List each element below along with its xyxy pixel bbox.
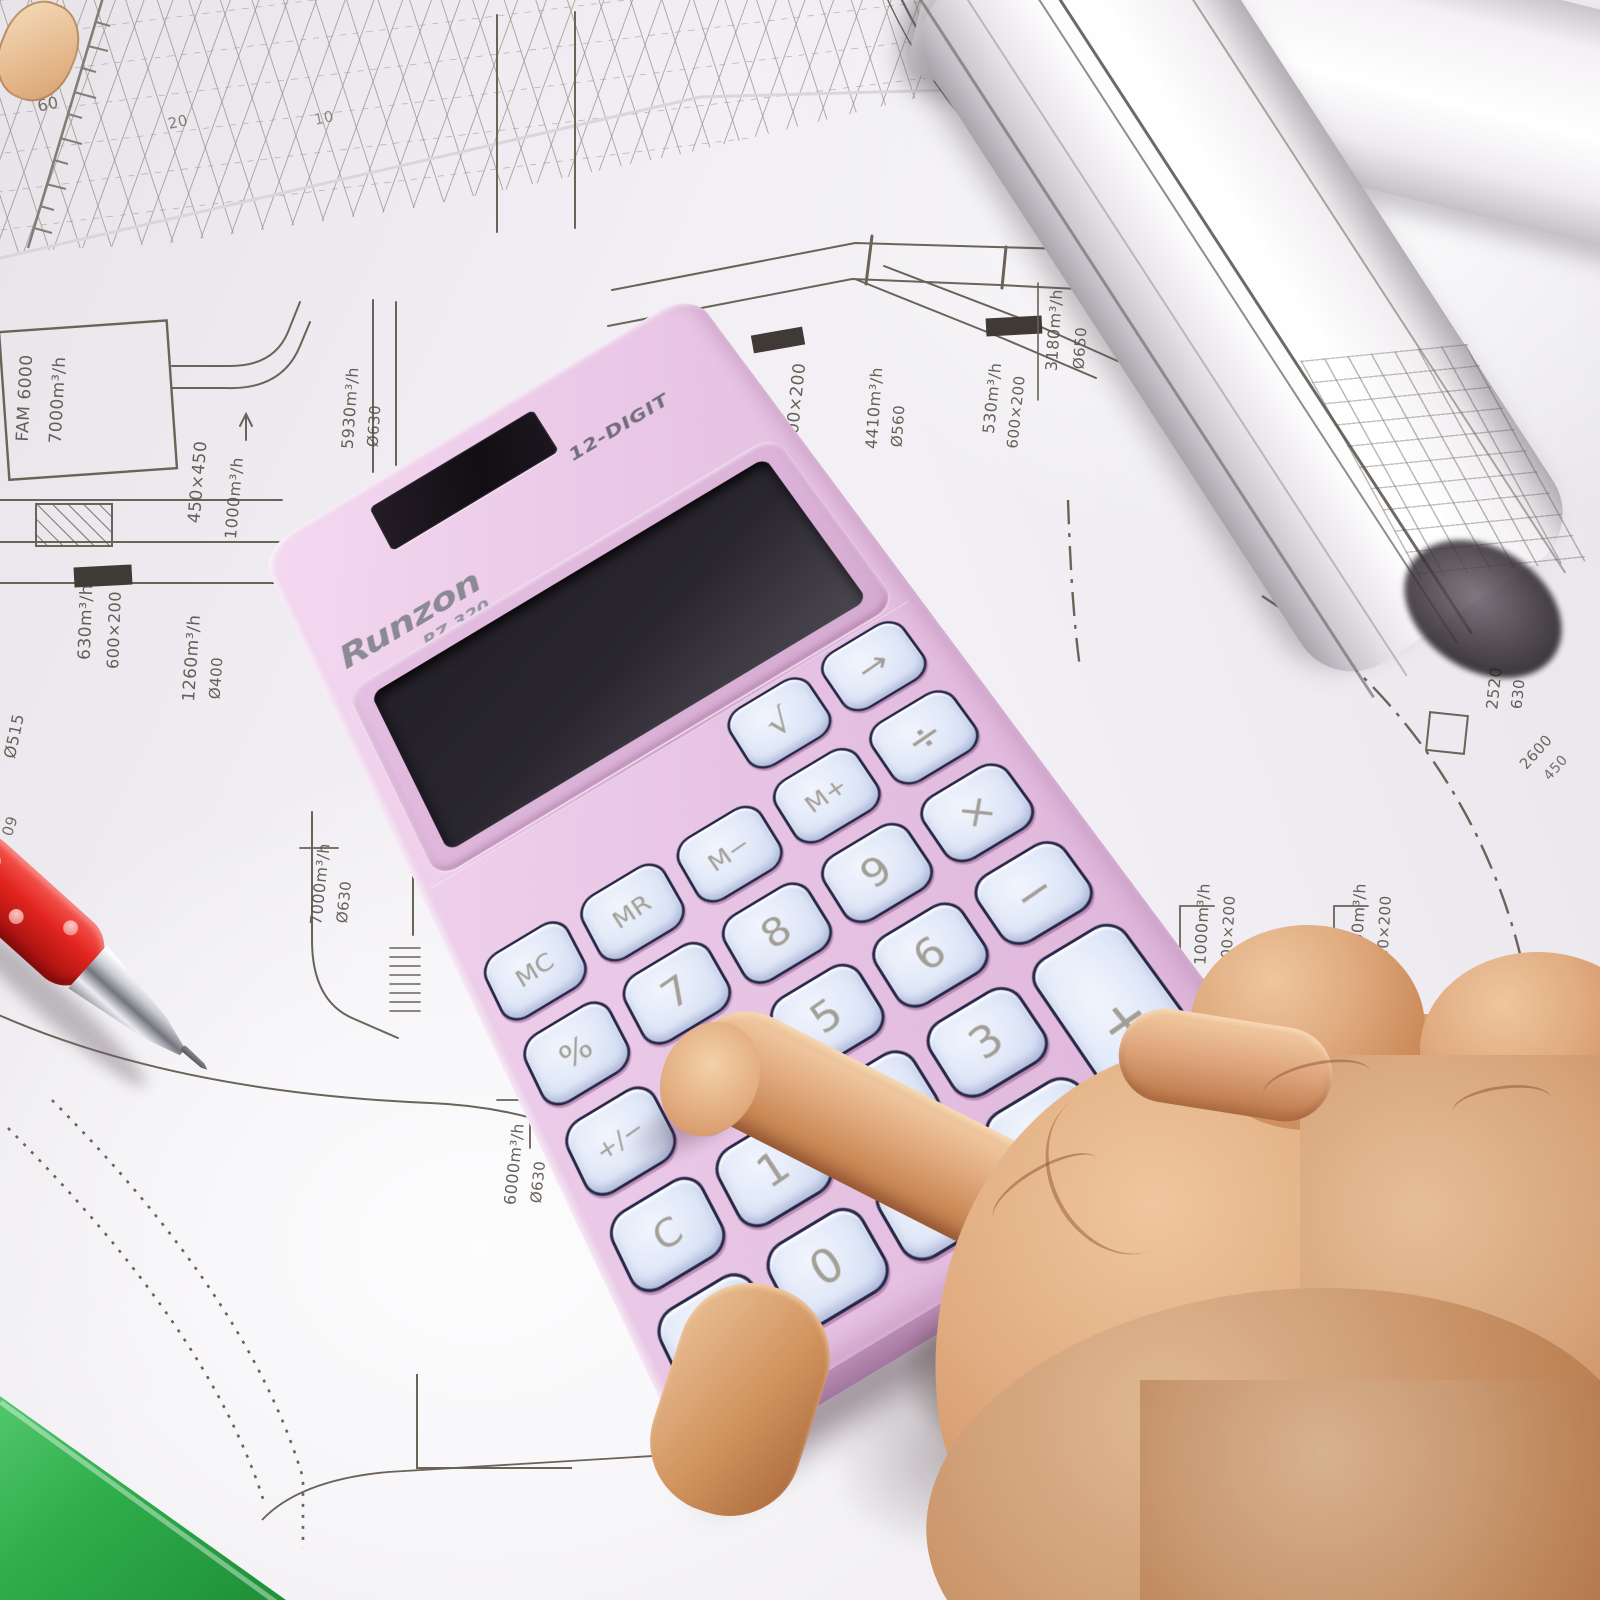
key-decimal[interactable]: . xyxy=(866,1133,1009,1271)
pen-lead xyxy=(180,1044,210,1072)
key-all-clear[interactable]: AC xyxy=(649,1264,786,1405)
pen-grip-dot xyxy=(0,850,4,871)
pen-grip-dot xyxy=(6,906,27,927)
key-0[interactable]: 0 xyxy=(758,1198,898,1337)
key-equals[interactable]: = xyxy=(975,1068,1121,1204)
pen-grip-dot xyxy=(60,917,81,938)
photo-scene: kJ/kg602010FAM 60007000m³/h450×4501000m³… xyxy=(0,0,1600,1600)
